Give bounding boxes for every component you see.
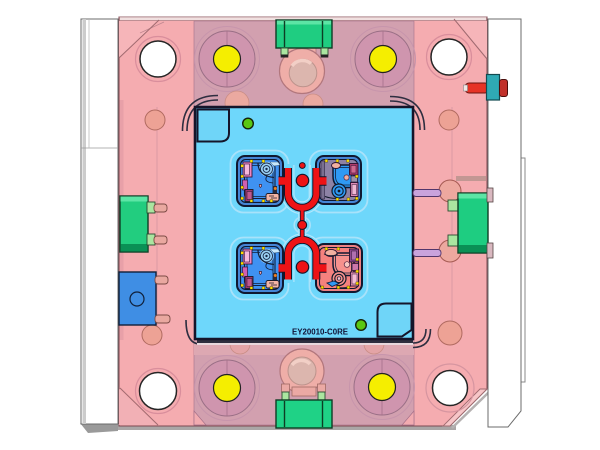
- svg-text:EY20010-C0RE: EY20010-C0RE: [292, 328, 349, 337]
